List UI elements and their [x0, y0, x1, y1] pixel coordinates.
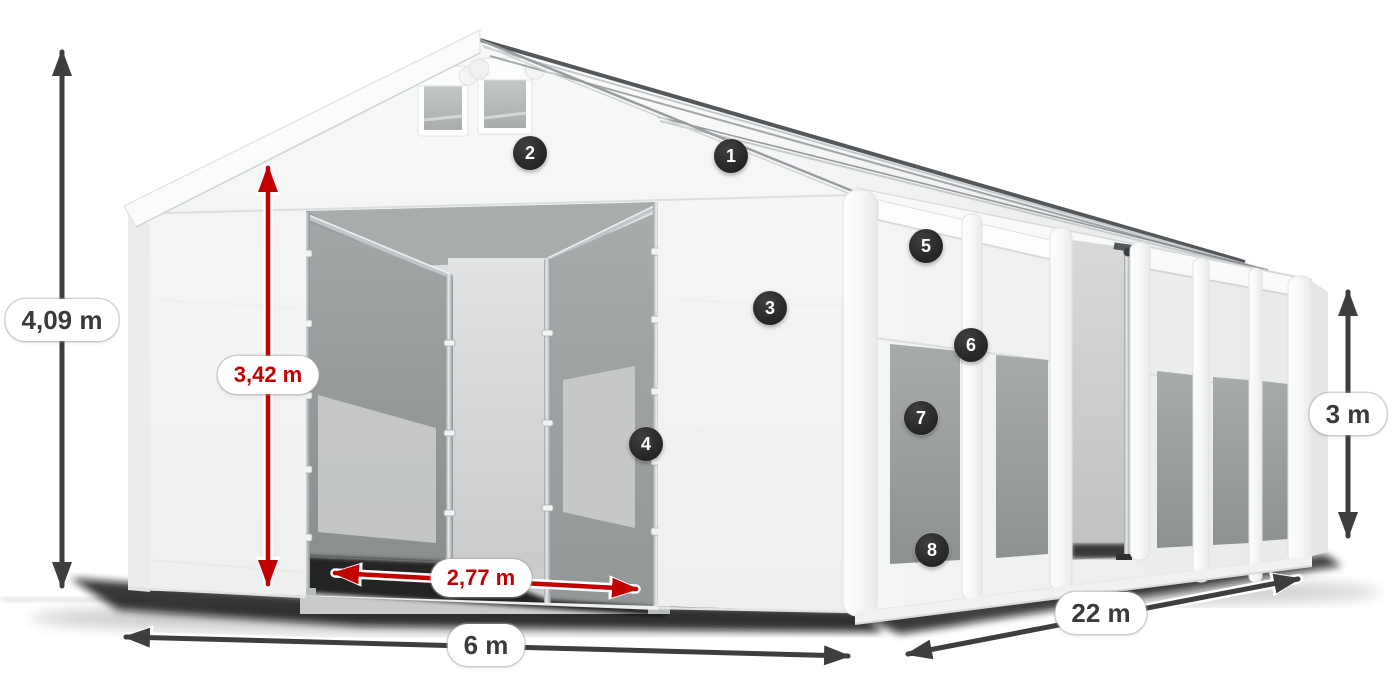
callout-badge-3: 3: [753, 291, 787, 325]
dim-label-entrance-width: 2,77 m: [433, 561, 530, 595]
callout-badge-8: 8: [915, 533, 949, 567]
callout-badge-2: 2: [513, 136, 547, 170]
callout-badge-4: 4: [629, 427, 663, 461]
callout-badge-1: 1: [714, 139, 748, 173]
dim-label-total-height: 4,09 m: [8, 301, 117, 339]
dim-label-side-height: 3 m: [1312, 395, 1385, 433]
callout-badge-5: 5: [909, 229, 943, 263]
dim-label-tent-width: 6 m: [450, 626, 523, 664]
dim-label-tent-length: 22 m: [1057, 594, 1144, 632]
dim-label-entrance-height: 3,42 m: [220, 358, 317, 392]
entrance-door-right: [548, 212, 658, 610]
tent-illustration: [0, 0, 1400, 700]
side-sliding-door-opening: [1072, 240, 1138, 560]
entrance-door-left: [306, 222, 450, 562]
callout-badge-6: 6: [954, 328, 988, 362]
tent: [124, 30, 1328, 624]
front-opening-interior: [296, 198, 670, 616]
callout-badge-7: 7: [904, 401, 938, 435]
tent-dimension-diagram: 4,09 m 3,42 m 2,77 m 6 m 22 m 3 m 1 2 3 …: [0, 0, 1400, 700]
